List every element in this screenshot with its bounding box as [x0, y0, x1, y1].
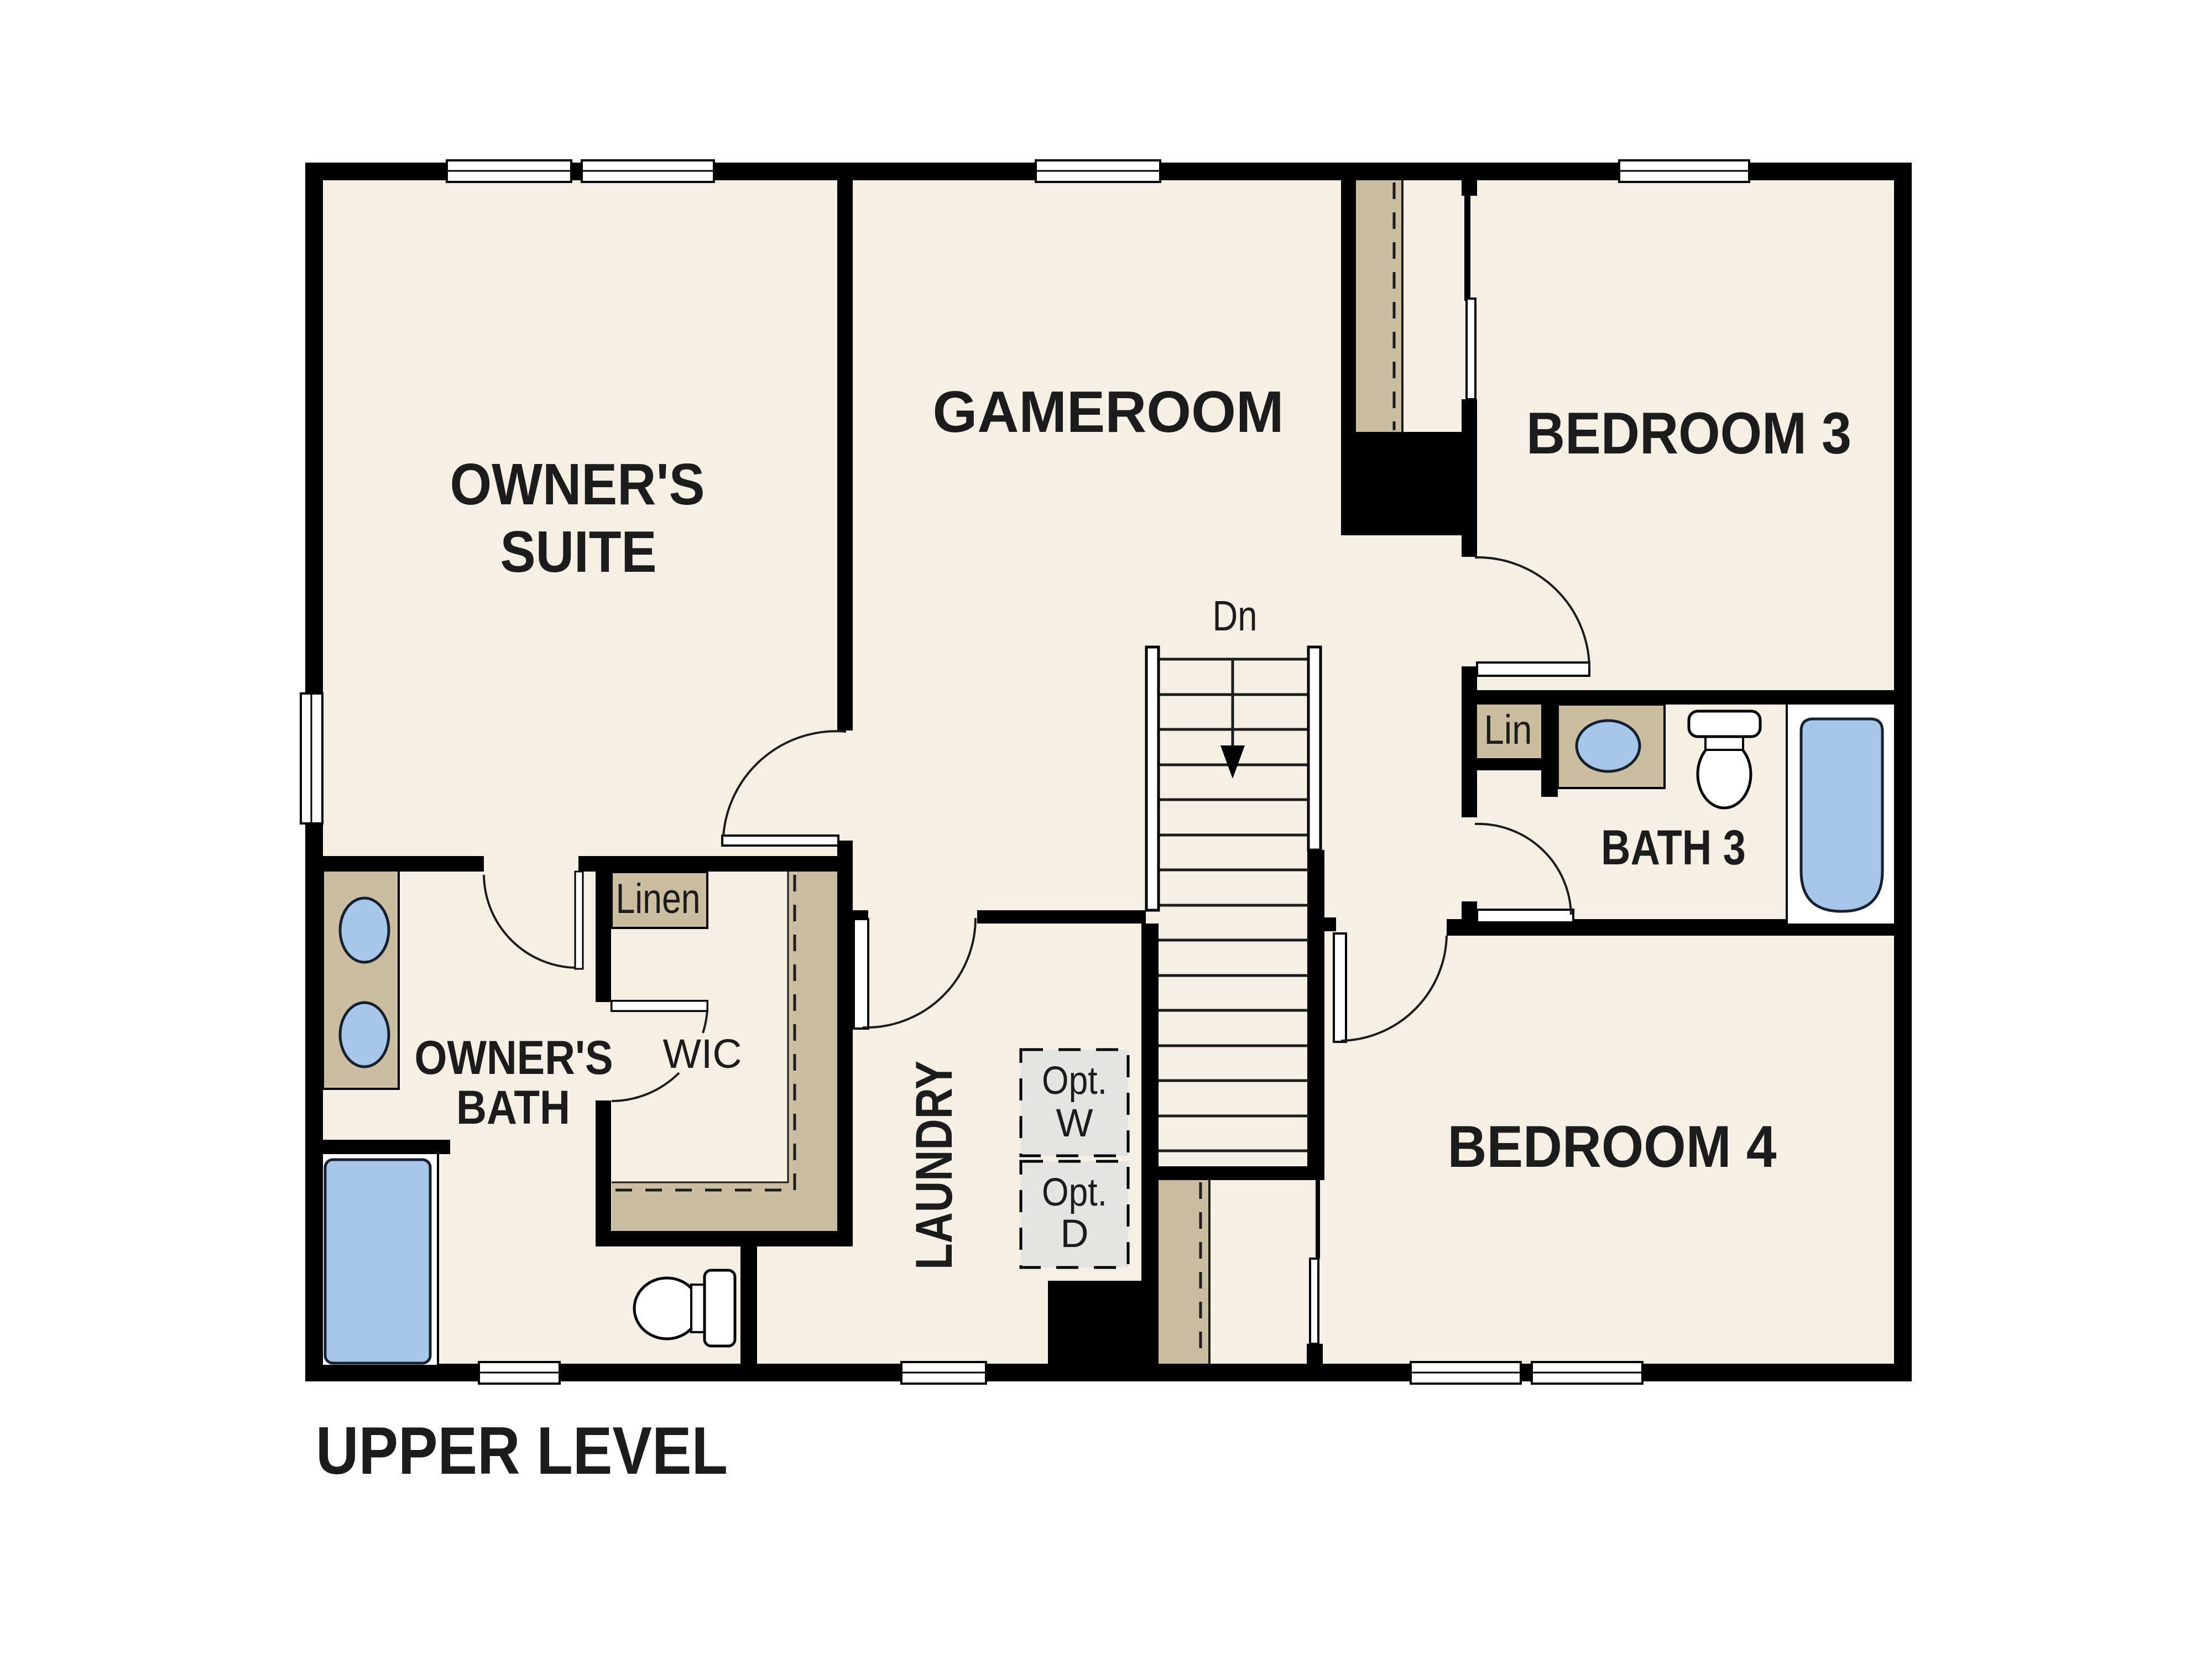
svg-text:Opt.: Opt.	[1042, 1059, 1107, 1103]
svg-text:Opt.: Opt.	[1042, 1171, 1107, 1214]
svg-text:GAMEROOM: GAMEROOM	[933, 379, 1284, 445]
svg-text:OWNER'S: OWNER'S	[450, 452, 705, 517]
svg-text:BATH: BATH	[456, 1081, 570, 1134]
svg-text:OWNER'S: OWNER'S	[415, 1031, 613, 1084]
svg-text:WIC: WIC	[663, 1031, 742, 1077]
svg-text:Linen: Linen	[616, 875, 701, 922]
svg-text:BATH 3: BATH 3	[1601, 820, 1746, 875]
svg-text:SUITE: SUITE	[500, 519, 657, 585]
svg-text:BEDROOM 4: BEDROOM 4	[1448, 1113, 1777, 1180]
svg-text:D: D	[1060, 1212, 1088, 1256]
svg-text:BEDROOM 3: BEDROOM 3	[1526, 400, 1851, 466]
svg-text:UPPER LEVEL: UPPER LEVEL	[316, 1413, 728, 1488]
svg-text:LAUNDRY: LAUNDRY	[905, 1061, 963, 1270]
svg-text:Lin: Lin	[1484, 707, 1532, 753]
svg-text:W: W	[1056, 1102, 1093, 1145]
svg-text:Dn: Dn	[1213, 592, 1258, 640]
